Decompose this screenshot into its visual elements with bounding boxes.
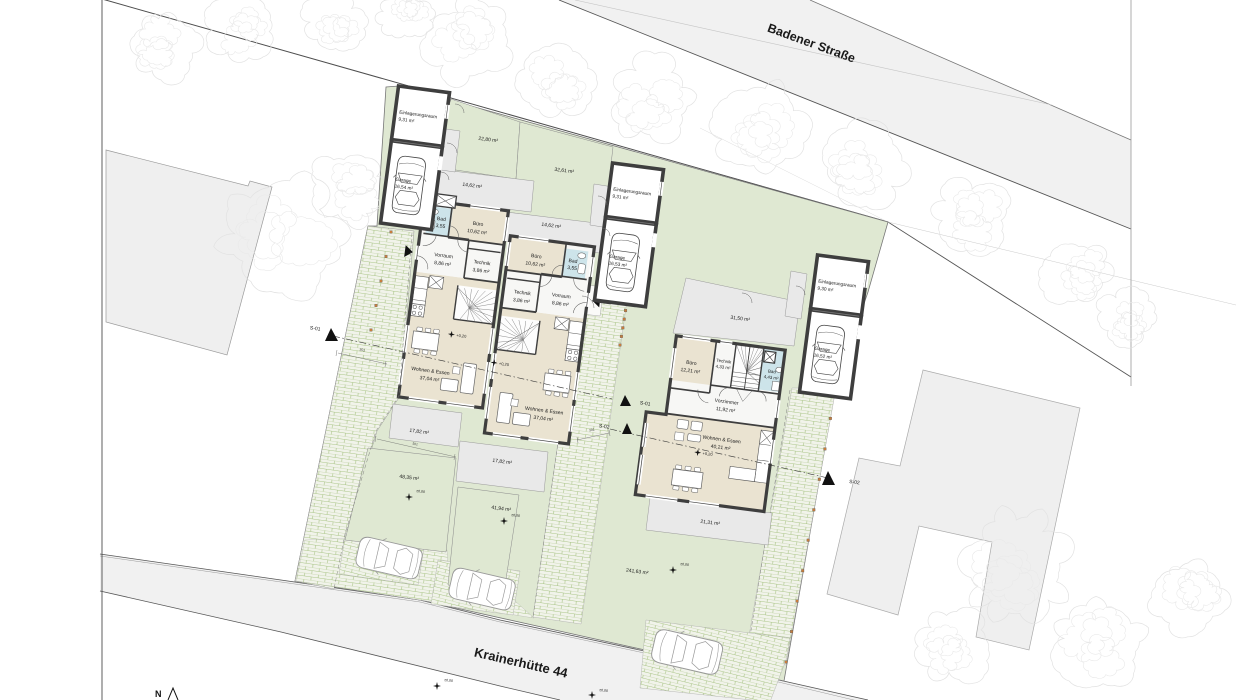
svg-text:Bad: Bad <box>437 216 447 223</box>
svg-text:N: N <box>155 689 162 699</box>
svg-text:Bad: Bad <box>568 258 578 265</box>
